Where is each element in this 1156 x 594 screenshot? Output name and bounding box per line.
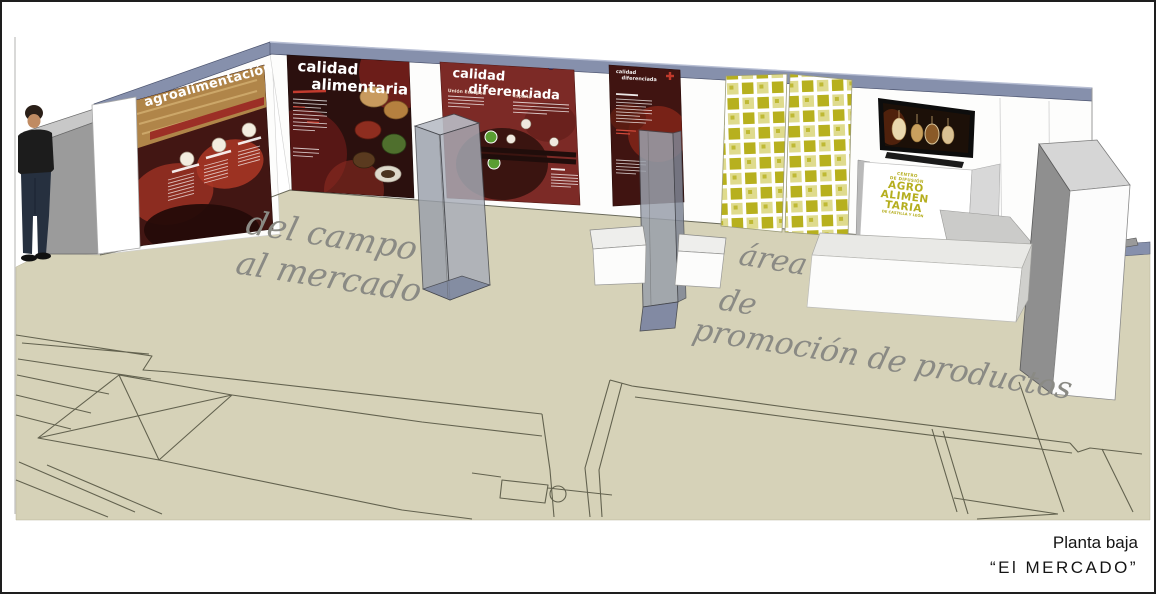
caption-el-mercado: “El MERCADO” (990, 558, 1138, 578)
glass-column-left (415, 114, 490, 300)
exhibition-render-page: agroalimentación calidad alimentaria cal… (0, 0, 1156, 594)
panel4-title: calidad diferenciada (615, 70, 657, 83)
kiosk-logo-text: CENTRO DE DIFUSIÓN AGRO ALIMEN TARIA DE … (869, 168, 942, 221)
person-face (28, 114, 41, 128)
person-jeans (21, 172, 51, 255)
caption-planta-baja: Planta baja (990, 533, 1138, 553)
pedestal-left (590, 226, 646, 285)
ham-1 (892, 118, 906, 140)
drawing-caption: Planta baja “El MERCADO” (990, 533, 1138, 578)
glass-column-right (639, 130, 686, 331)
yellow-checker-panel-right (785, 74, 852, 237)
person-shoe-right (35, 253, 51, 260)
pedestal-right (675, 234, 726, 288)
person-shirt (18, 129, 54, 177)
panel2-title: calidad alimentaria (296, 58, 410, 99)
wall-end-post (92, 97, 140, 254)
yellow-checker-panel-left (721, 74, 787, 232)
ham-3 (925, 124, 939, 144)
tall-pillar (1020, 140, 1130, 400)
counter-block (807, 233, 1032, 322)
ham-2 (911, 124, 923, 142)
person-shoe-left (21, 255, 37, 262)
ham-4 (942, 126, 954, 144)
